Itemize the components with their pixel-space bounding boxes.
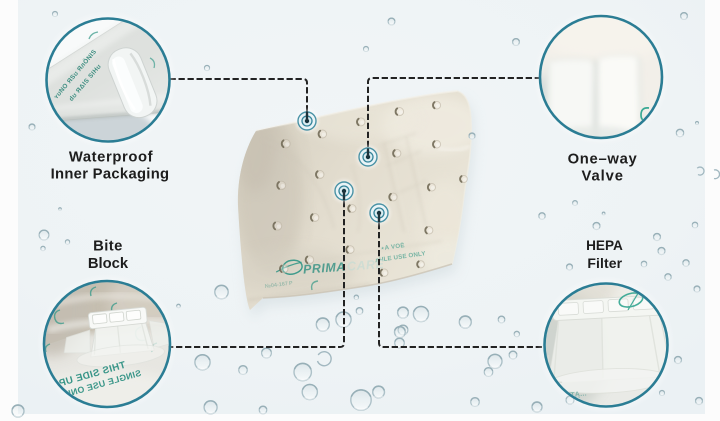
- svg-text:Filter: Filter: [587, 255, 622, 271]
- svg-text:Inner Packaging: Inner Packaging: [51, 166, 170, 182]
- svg-text:Valve: Valve: [582, 168, 624, 184]
- svg-text:Bite: Bite: [93, 239, 123, 255]
- svg-text:HEPA: HEPA: [586, 238, 623, 253]
- svg-text:One–way: One–way: [568, 151, 638, 167]
- svg-text:Block: Block: [88, 256, 129, 272]
- svg-text:Waterproof: Waterproof: [69, 149, 153, 165]
